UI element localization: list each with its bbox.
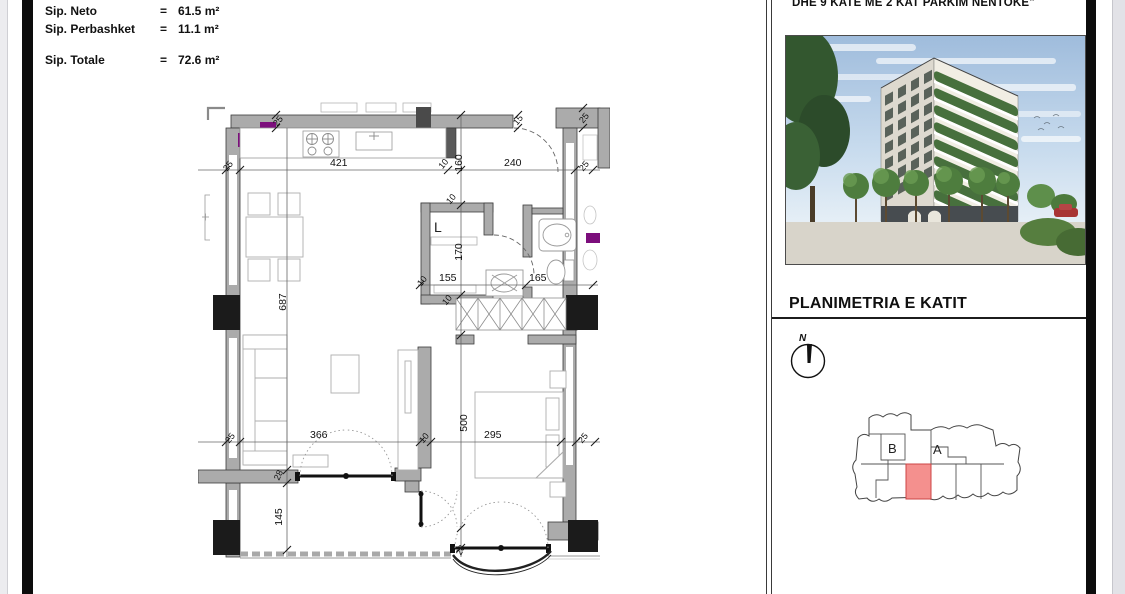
keyplan-outline [853,413,1021,502]
dim-10-top: 10 [436,157,450,171]
building-rendering-art [786,36,1085,264]
drawing-sheet: Sip. Neto = 61.5 m² Sip. Perbashket = 11… [0,0,1125,594]
dim-366: 366 [310,429,328,441]
accent-purple-right [586,233,600,243]
dim-240: 240 [504,157,522,169]
equals-sign: = [160,22,167,36]
dim-170: 170 [453,243,465,261]
area-value: 11.1 m² [178,22,219,36]
equals-sign: = [160,53,167,67]
panel-title: PLANIMETRIA E KATIT [789,295,967,313]
panel-title-rule [772,317,1086,319]
sofa [243,335,328,467]
coffee-table [331,355,359,393]
block-a-label: A [933,442,942,457]
area-label: Sip. Perbashket [45,22,135,36]
window-bracket-plus [202,214,209,221]
dim-160: 160 [453,154,465,172]
neighbor-fixtures [583,135,597,270]
wc-wall-right-stub [484,203,493,235]
dim-25-bot-right: 25 [576,431,590,445]
area-label: Sip. Neto [45,4,97,18]
neighbor-wall-sliver [598,108,610,168]
bath-wall-top [532,208,563,214]
wall-jamb2 [405,481,419,492]
dim-155: 155 [439,272,457,284]
column-top [416,107,431,128]
building-rendering [785,35,1086,265]
washing-machine [486,270,523,296]
dim-295: 295 [484,429,502,441]
shaft-hatch [456,298,566,330]
bedroom-wall-top-left [456,335,474,344]
highlighted-unit [906,464,931,499]
nightstand-top [550,371,566,388]
dim-165: 165 [529,272,547,284]
key-plan: B A [836,402,1036,514]
bathtub [539,219,576,251]
dim-28-bottom: 28 [454,543,467,556]
project-note: DHE 9 KATE ME 2 KAT PARKIM NENTOKE" [792,0,1084,9]
neighbor-balcony-top [321,103,431,112]
adjacent-wall-corner [208,108,225,120]
kitchen [240,128,446,158]
block-b-label: B [888,441,897,456]
titleblock-divider-outer [766,0,767,594]
north-arrow: N [786,330,832,384]
north-label: N [799,333,807,344]
frame-bar-left [22,0,33,594]
area-label: Sip. Totale [45,53,105,67]
dining-set [246,193,303,281]
dim-421: 421 [330,157,348,169]
wall-partition-bedroom [418,347,431,468]
wc-wall-left [421,203,430,304]
toilet [547,260,574,284]
wc-wall-top [421,203,493,212]
nightstand-bottom [550,482,566,497]
wall-kitchen-stub [446,128,456,158]
dim-145: 145 [273,508,285,526]
kitchen-counter [240,128,446,158]
room-label-l: L [434,219,442,235]
bedroom-wall-top-right [528,335,576,344]
walls [198,108,610,557]
frame-bar-right [1086,0,1096,594]
tv-cabinet [398,350,418,470]
dim-25-top-right: 25 [577,159,591,173]
equals-sign: = [160,4,167,18]
area-value: 72.6 m² [178,53,219,67]
titleblock-divider-inner [771,0,772,594]
dim-500: 500 [458,414,470,432]
dim-687: 687 [277,293,289,311]
curve-mark [453,551,551,571]
page-edge [1112,0,1125,594]
area-value: 61.5 m² [178,4,219,18]
north-needle [807,344,812,363]
floor-plan: L [198,95,610,594]
sliding-doors [295,472,551,553]
dining-table [246,217,303,257]
